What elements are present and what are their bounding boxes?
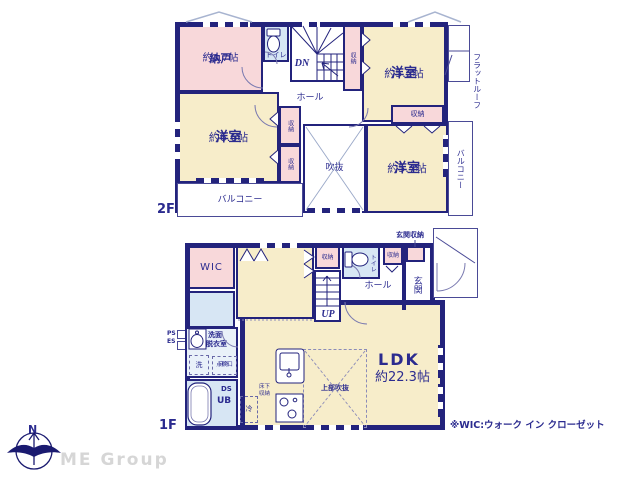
f1-es-label: ES [167,338,175,345]
f1-entrance-storage-label: 玄関収納 [396,231,424,239]
f1-open-ceiling-label: 上部吹抜 [321,384,349,392]
f2-window [195,22,250,27]
f2-window [443,135,448,177]
compass-icon [7,433,61,469]
f2-bedroom-57: 洋室 約5.7帖 [366,124,448,213]
f1-stairs-up-label: UP [318,309,338,321]
f1-window [438,345,443,378]
f2-window [196,178,264,183]
f2-window [294,22,320,27]
f1-window [306,425,363,430]
f1-ldk-size: 約22.3帖 [375,370,430,386]
f1-ldk-name: LDK [378,350,420,369]
f2-closet-c-label: 収納 [286,158,293,170]
f1-window [250,425,285,430]
f1-fridge-space: 冷 [240,396,258,423]
f1-washroom-label1: 洗面 [208,331,222,339]
f2-window [175,115,180,167]
f2-stairs-dn-label: DN [291,58,313,70]
f2-storage-room: 納戸 約3.7帖 [178,25,263,92]
f1-floor-label: 1F [159,418,177,434]
f1-washroom-upper-area [188,291,235,328]
f2-closet-a: 収納 [343,25,362,91]
f1-closet-a-label: 収納 [321,254,333,261]
f1-closet-a: 収納 [315,246,340,269]
f1-wic-label: WIC [200,262,223,274]
f1-closet-b-label: 収納 [387,252,399,259]
f1-washer-label: 洗 [196,361,203,369]
f2-window [385,22,435,27]
compass-north-label: N [28,423,37,436]
f1-toilet-label: トイレ [369,249,376,277]
f2-flat-roof-label: フラットルーフ [472,26,482,136]
f2-toilet: トイレ [263,25,289,62]
company-logo: ME Group [60,450,169,470]
f2-stairs [290,25,345,82]
f2-toilet-label: トイレ [266,51,287,59]
f1-open-ceiling: 上部吹抜 [303,349,367,428]
f2-bedroom-66: 洋室 約6.6帖 [178,92,279,183]
floorplan-canvas: 納戸 約3.7帖 トイレ DN 収納 洋室 約5.2帖 ホール 洋室 約6.6帖… [0,0,640,480]
f1-entrance-storage [406,246,425,262]
f1-washer-space: 洗 [189,355,209,375]
f2-balcony-right-label: バルコニー [456,149,466,189]
f1-underfloor-storage-label1: 床下 [259,384,270,391]
f2-bedroom-57-size: 約5.7帖 [387,162,427,175]
f2-closet-b-label: 収納 [286,120,293,132]
f1-ds-label: DS [221,385,232,393]
f2-bedroom-66-size: 約6.6帖 [209,131,249,144]
f2-floor-label: 2F [157,202,175,218]
wic-note: ※WIC:ウォーク イン クローゼット [450,420,605,431]
f1-wic: WIC [188,246,235,289]
f1-floor-hatch-label2: 点検口 [216,362,233,369]
f2-closet-d: 収納 [391,105,444,124]
f2-balcony-right: バルコニー [448,121,473,216]
f2-closet-c: 収納 [279,145,301,183]
f2-window [307,208,362,213]
f2-void-label: 吹抜 [325,163,343,174]
f1-closet-b: 収納 [383,246,403,265]
f2-closet-b: 収納 [279,106,301,145]
f2-hall-label: ホール [288,93,332,104]
roof-line-marks [186,12,461,22]
f1-washroom-label2: 脱衣室 [206,340,227,348]
f1-ldk-upper-area [236,246,314,319]
f2-closet-d-label: 収納 [411,110,425,118]
f1-window [252,243,300,248]
f1-window [438,384,443,417]
f1-floor-hatch: 床下 点検口 [212,356,237,375]
f1-entrance-porch [433,228,478,298]
f2-closet-a-label: 収納 [349,52,356,64]
f2-void: 吹抜 [303,124,366,213]
f2-balcony-bottom-label: バルコニー [218,195,263,206]
f2-bedroom-52-size: 約5.2帖 [384,67,424,80]
f1-genkan-label: 玄関 [411,268,422,302]
f1-hall-genkan-wall [402,246,406,310]
f2-balcony-bottom: バルコニー [177,183,303,217]
f1-underfloor-storage-label2: 収納 [259,391,270,398]
f2-storage-room-size: 約3.7帖 [203,53,239,65]
f1-fridge-label: 冷 [246,405,253,413]
f2-flat-roof-box [448,25,470,82]
f1-ps-label: PS [167,330,176,337]
f1-ub-label: UB [217,396,231,407]
f1-hall-label: ホール [356,281,400,292]
